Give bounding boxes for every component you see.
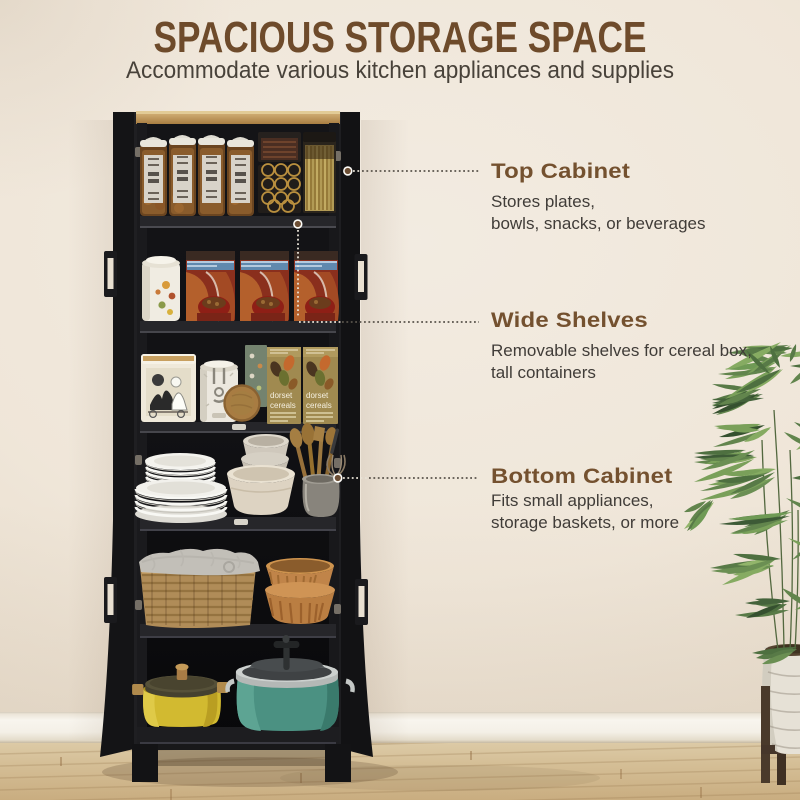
- svg-text:dorset: dorset: [306, 391, 329, 400]
- svg-text:cereals: cereals: [306, 401, 332, 410]
- svg-text:dorset: dorset: [270, 391, 293, 400]
- svg-text:cereals: cereals: [270, 401, 296, 410]
